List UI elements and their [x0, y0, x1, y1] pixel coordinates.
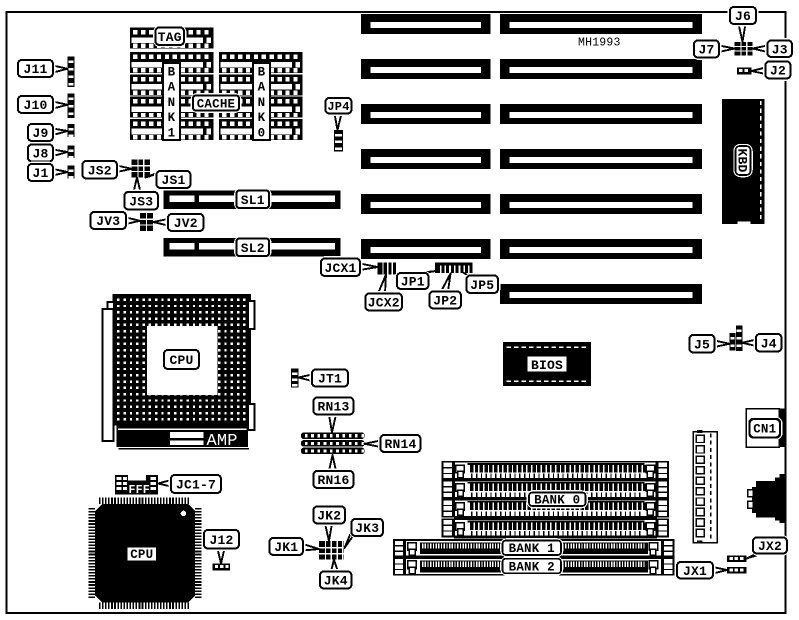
- svg-text:J8: J8: [32, 147, 48, 162]
- svg-text:RN14: RN14: [384, 437, 416, 452]
- svg-text:SL1: SL1: [241, 193, 265, 208]
- svg-text:JP5: JP5: [470, 278, 494, 293]
- svg-text:J4: J4: [761, 336, 777, 351]
- svg-text:MH1993: MH1993: [578, 37, 621, 50]
- svg-text:J11: J11: [23, 62, 47, 77]
- svg-text:J1: J1: [32, 166, 48, 181]
- svg-text:CN1: CN1: [753, 423, 776, 437]
- svg-text:BIOS: BIOS: [531, 358, 563, 373]
- svg-text:J9: J9: [32, 126, 48, 141]
- svg-text:J12: J12: [209, 533, 233, 548]
- svg-text:0: 0: [258, 126, 266, 140]
- svg-text:CPU: CPU: [169, 353, 193, 368]
- svg-text:N: N: [258, 96, 266, 110]
- svg-text:A: A: [168, 81, 176, 95]
- svg-text:KBD: KBD: [735, 148, 750, 172]
- svg-text:JCX2: JCX2: [368, 296, 400, 311]
- svg-text:RN16: RN16: [317, 473, 349, 488]
- svg-text:J7: J7: [698, 43, 714, 58]
- svg-text:BANK 2: BANK 2: [509, 560, 555, 574]
- svg-text:JS1: JS1: [161, 173, 185, 188]
- svg-text:JK2: JK2: [317, 509, 341, 524]
- svg-text:JV3: JV3: [96, 214, 120, 229]
- svg-text:J2: J2: [770, 64, 786, 79]
- svg-text:BANK 0: BANK 0: [534, 494, 580, 508]
- svg-text:K: K: [168, 111, 176, 125]
- svg-text:J5: J5: [694, 337, 710, 352]
- svg-text:SL2: SL2: [241, 241, 265, 256]
- svg-text:BANK 1: BANK 1: [509, 542, 555, 556]
- svg-text:JV2: JV2: [174, 216, 198, 231]
- svg-text:N: N: [168, 96, 176, 110]
- svg-text:J6: J6: [735, 9, 751, 24]
- svg-text:JS3: JS3: [129, 194, 153, 209]
- svg-text:JC1-7: JC1-7: [176, 478, 216, 493]
- svg-text:CPU: CPU: [130, 548, 153, 562]
- svg-text:JS2: JS2: [88, 163, 112, 178]
- svg-text:B: B: [258, 66, 266, 80]
- svg-text:1: 1: [168, 126, 176, 140]
- svg-text:B: B: [168, 66, 176, 80]
- svg-text:FFF: FFF: [129, 484, 150, 497]
- svg-text:K: K: [258, 111, 266, 125]
- svg-text:JK1: JK1: [274, 540, 298, 555]
- svg-text:JP4: JP4: [327, 100, 349, 114]
- svg-text:JX1: JX1: [683, 564, 707, 579]
- svg-text:JX2: JX2: [758, 539, 782, 554]
- svg-text:JP2: JP2: [433, 294, 457, 309]
- svg-text:J10: J10: [23, 98, 47, 113]
- svg-text:JP1: JP1: [401, 275, 425, 290]
- svg-text:A: A: [258, 81, 266, 95]
- svg-text:J3: J3: [772, 42, 788, 57]
- svg-text:JT1: JT1: [318, 372, 342, 387]
- svg-text:JK4: JK4: [324, 574, 348, 589]
- svg-text:JK3: JK3: [355, 521, 379, 536]
- svg-text:TAG: TAG: [158, 30, 182, 45]
- svg-text:JCX1: JCX1: [324, 261, 356, 276]
- svg-text:CACHE: CACHE: [197, 97, 236, 111]
- svg-text:RN13: RN13: [317, 400, 349, 415]
